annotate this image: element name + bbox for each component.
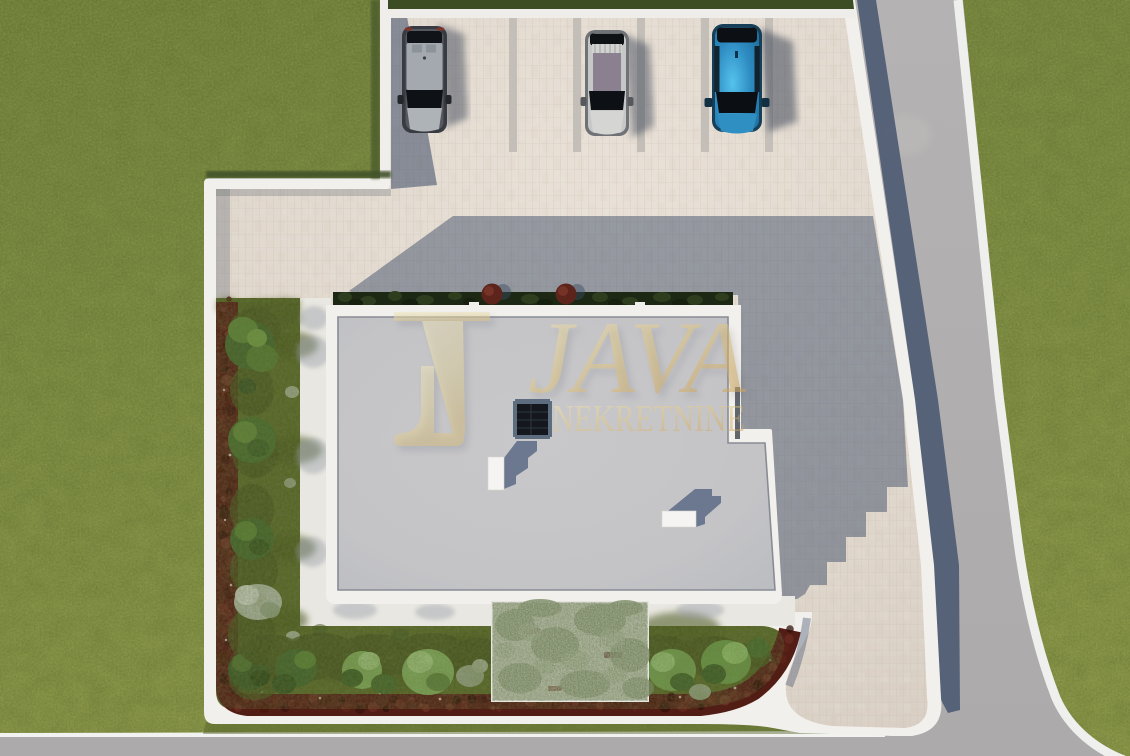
svg-text:NEKRETNINE: NEKRETNINE (552, 398, 745, 440)
